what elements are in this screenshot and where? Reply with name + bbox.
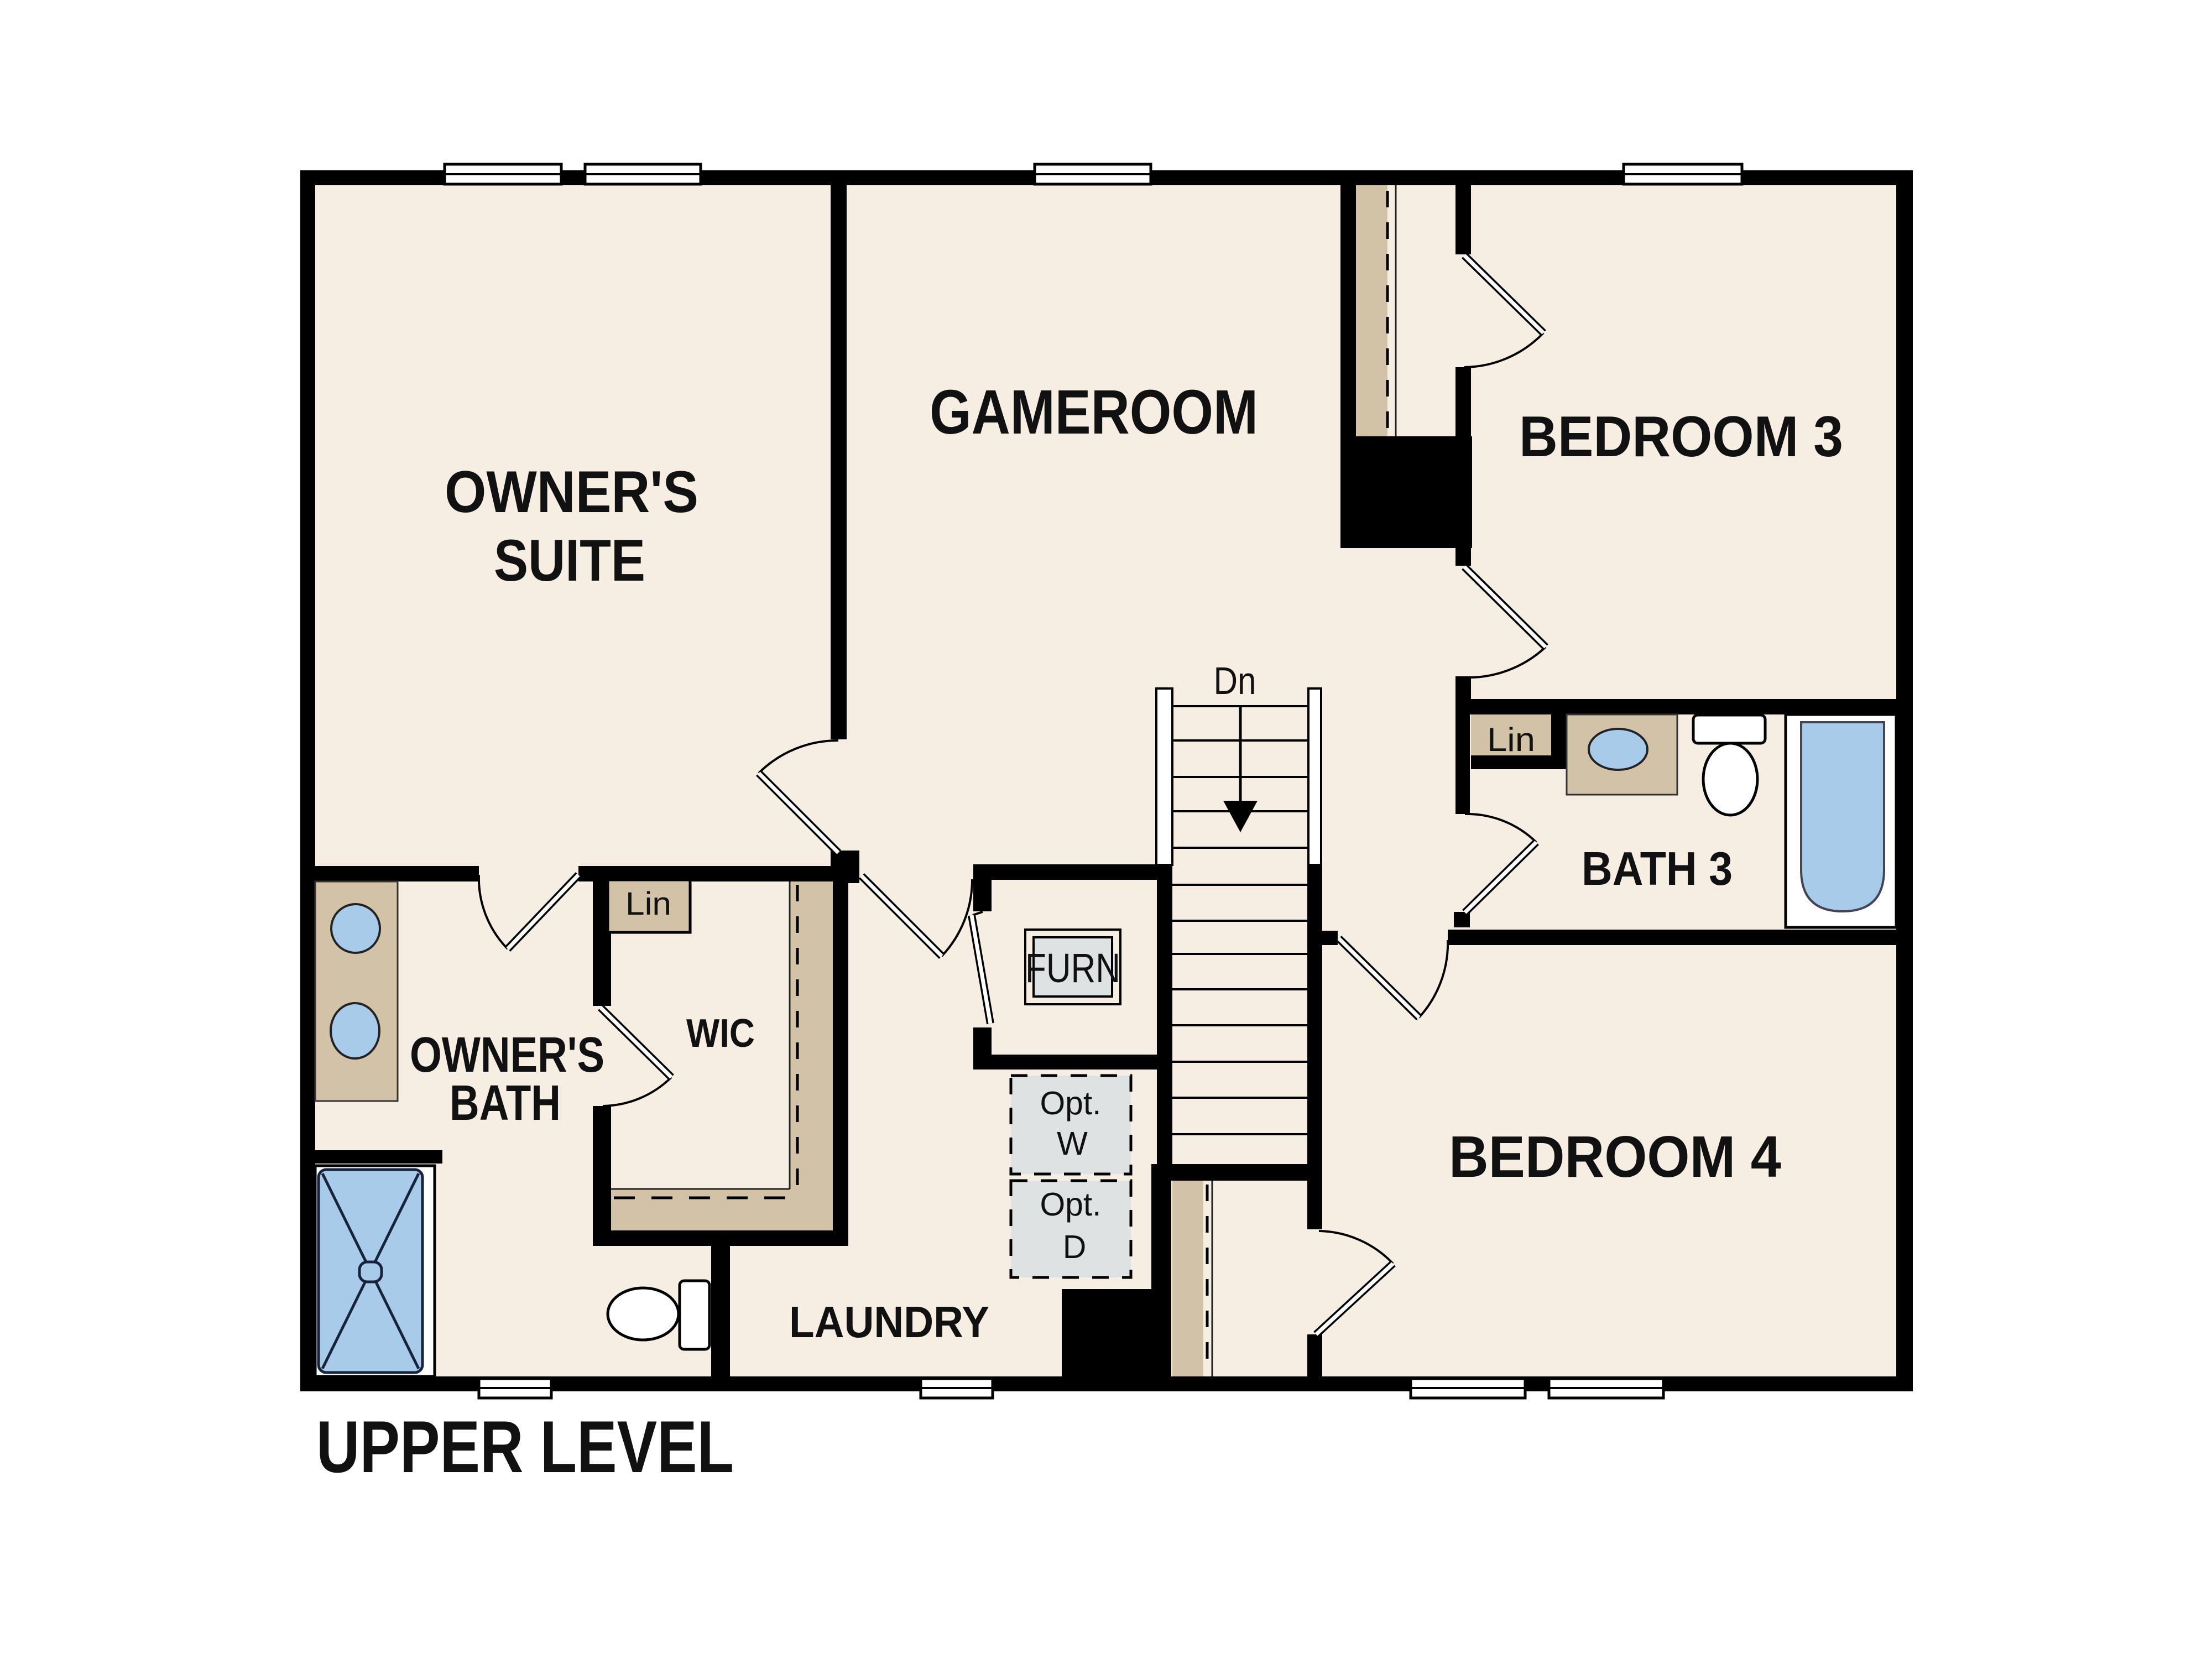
svg-text:Opt.: Opt. [1040,1085,1102,1121]
svg-text:LAUNDRY: LAUNDRY [789,1297,989,1347]
svg-text:Dn: Dn [1214,659,1256,702]
svg-text:BATH 3: BATH 3 [1582,843,1733,895]
svg-text:BEDROOM 3: BEDROOM 3 [1519,405,1843,469]
svg-text:Lin: Lin [625,886,671,922]
svg-text:BATH: BATH [450,1076,561,1131]
svg-text:FURN: FURN [1025,945,1120,991]
svg-text:Opt.: Opt. [1040,1186,1102,1223]
svg-text:WIC: WIC [686,1011,755,1056]
svg-text:SUITE: SUITE [494,527,645,593]
svg-text:Lin: Lin [1487,721,1535,758]
svg-text:OWNER'S: OWNER'S [410,1027,604,1083]
svg-text:UPPER LEVEL: UPPER LEVEL [316,1406,734,1488]
svg-text:GAMEROOM: GAMEROOM [930,377,1258,447]
svg-text:D: D [1063,1229,1087,1265]
svg-text:BEDROOM 4: BEDROOM 4 [1449,1124,1781,1190]
svg-text:OWNER'S: OWNER'S [445,458,698,525]
svg-text:W: W [1057,1125,1088,1162]
